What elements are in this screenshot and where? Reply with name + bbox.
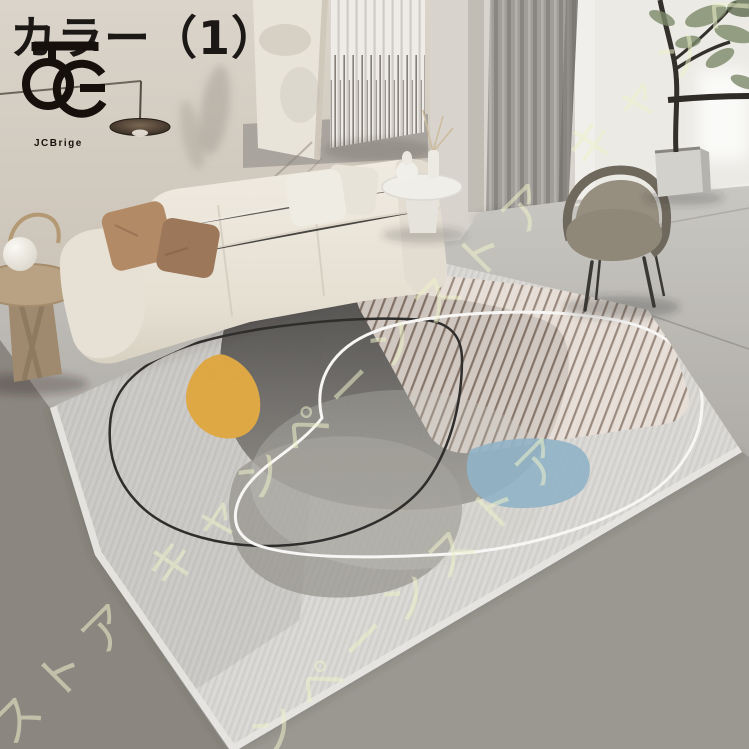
wall-corner-shadow xyxy=(468,0,484,212)
chair-seat xyxy=(566,209,662,261)
curtain xyxy=(473,0,583,229)
concrete-planter xyxy=(655,148,703,197)
white-pillow xyxy=(284,168,347,228)
brand-logo-text: JCBrige xyxy=(34,138,83,149)
ball-table-lamp xyxy=(3,237,37,271)
lamp-bulb xyxy=(132,130,148,137)
brand-logo: JCBrige xyxy=(8,38,128,130)
jc-monogram-icon xyxy=(8,38,128,130)
chair-shadow xyxy=(564,296,680,318)
product-photo-rug-living-room: ストア キャンペーンストア キャンペーン ストア キャンペーンストア カラー（1… xyxy=(0,0,749,749)
slim-vase xyxy=(428,150,439,178)
header: カラー（1） JCBrige xyxy=(10,2,278,68)
